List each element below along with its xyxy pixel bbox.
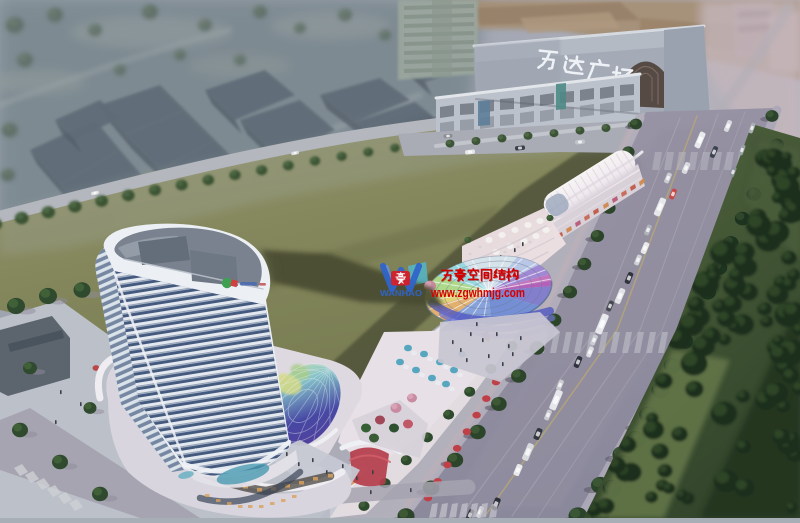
svg-text:www.zgwhmjg.com: www.zgwhmjg.com [430, 285, 525, 300]
svg-text:WANHAO: WANHAO [380, 289, 422, 298]
